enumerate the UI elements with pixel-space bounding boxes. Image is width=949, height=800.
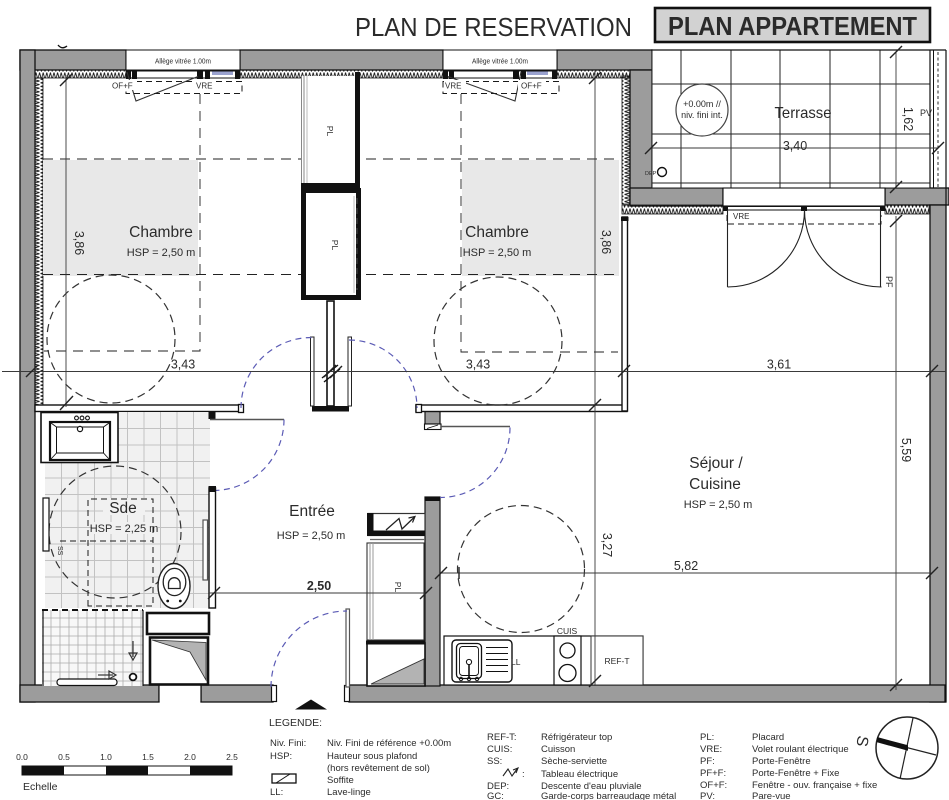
svg-text:DEP: DEP — [645, 171, 657, 177]
svg-text:Chambre: Chambre — [129, 224, 193, 241]
svg-text:LEGENDE:: LEGENDE: — [269, 717, 322, 729]
svg-text:Echelle: Echelle — [23, 781, 58, 793]
svg-text:1.0: 1.0 — [100, 752, 112, 762]
svg-text:1.5: 1.5 — [142, 752, 154, 762]
svg-text:3,43: 3,43 — [466, 358, 490, 372]
svg-text:PLAN DE RESERVATION: PLAN DE RESERVATION — [355, 12, 632, 42]
svg-text:HSP = 2,50 m: HSP = 2,50 m — [684, 499, 753, 511]
svg-text:Niv. Fini de référence +0.00m: Niv. Fini de référence +0.00m — [327, 738, 451, 749]
svg-text:5,59: 5,59 — [899, 438, 913, 462]
svg-text:3,86: 3,86 — [72, 231, 86, 255]
svg-text:Porte-Fenêtre: Porte-Fenêtre — [752, 756, 811, 767]
svg-text:OF+F: OF+F — [112, 82, 133, 91]
svg-text:SS: SS — [56, 546, 63, 556]
svg-text:Garde-corps barreaudage métal: Garde-corps barreaudage métal — [541, 791, 676, 800]
svg-text:3,27: 3,27 — [600, 533, 614, 557]
svg-text:SS:: SS: — [487, 756, 502, 767]
svg-text:Soffite: Soffite — [327, 775, 354, 786]
svg-text:PF: PF — [884, 276, 894, 288]
svg-text:Cuisson: Cuisson — [541, 744, 575, 755]
svg-text:HSP:: HSP: — [270, 751, 292, 762]
svg-text:HSP = 2,50 m: HSP = 2,50 m — [127, 247, 196, 259]
svg-text:Niv. Fini:: Niv. Fini: — [270, 738, 306, 749]
svg-text:Fenêtre - ouv. française + fix: Fenêtre - ouv. française + fixe — [752, 780, 877, 791]
svg-text:HSP = 2,25 m: HSP = 2,25 m — [90, 523, 159, 535]
svg-text:5,82: 5,82 — [674, 559, 698, 573]
svg-text:REF-T:: REF-T: — [487, 732, 517, 743]
svg-text:Séjour /: Séjour / — [689, 455, 743, 472]
svg-text:HSP = 2,50 m: HSP = 2,50 m — [463, 247, 532, 259]
svg-text:0.5: 0.5 — [58, 752, 70, 762]
svg-text:VRE:: VRE: — [700, 744, 722, 755]
svg-text:2.5: 2.5 — [226, 752, 238, 762]
svg-text:PL: PL — [330, 240, 340, 251]
svg-text:VRE: VRE — [196, 82, 212, 91]
svg-text:2.0: 2.0 — [184, 752, 196, 762]
svg-text:Allège vitrée 1.00m: Allège vitrée 1.00m — [472, 57, 528, 66]
svg-text:1,62: 1,62 — [901, 107, 915, 131]
svg-text:2,50: 2,50 — [307, 579, 331, 593]
svg-text:CUIS:: CUIS: — [487, 744, 512, 755]
svg-text:Lave-linge: Lave-linge — [327, 787, 371, 798]
svg-text:Chambre: Chambre — [465, 224, 529, 241]
svg-text:PF:: PF: — [700, 756, 715, 767]
svg-text:Sde: Sde — [109, 500, 137, 517]
svg-text:Entrée: Entrée — [289, 503, 335, 520]
svg-text:Porte-Fenêtre + Fixe: Porte-Fenêtre + Fixe — [752, 768, 839, 779]
svg-text::: : — [522, 769, 525, 780]
svg-text:3,43: 3,43 — [171, 358, 195, 372]
svg-text:3,61: 3,61 — [767, 358, 791, 372]
svg-text:LL: LL — [511, 657, 521, 667]
svg-text:CUIS: CUIS — [557, 626, 578, 636]
svg-text:3,40: 3,40 — [783, 139, 807, 153]
svg-text:LL:: LL: — [270, 787, 283, 798]
svg-text:PL:: PL: — [700, 732, 714, 743]
svg-text:niv. fini int.: niv. fini int. — [681, 110, 723, 120]
svg-text:3,86: 3,86 — [599, 230, 613, 254]
svg-text:Pare-vue: Pare-vue — [752, 791, 791, 800]
svg-text:PF+F:: PF+F: — [700, 768, 726, 779]
svg-text:Cuisine: Cuisine — [689, 476, 741, 493]
svg-text:Volet roulant électrique: Volet roulant électrique — [752, 744, 849, 755]
svg-text:PV: PV — [920, 108, 932, 118]
svg-text:OF+F:: OF+F: — [700, 780, 727, 791]
svg-text:HSP = 2,50 m: HSP = 2,50 m — [277, 530, 346, 542]
svg-text:REF-T: REF-T — [604, 656, 629, 666]
svg-text:Tableau électrique: Tableau électrique — [541, 769, 618, 780]
svg-text:VRE: VRE — [733, 212, 749, 221]
svg-text:Placard: Placard — [752, 732, 784, 743]
svg-text:VRE: VRE — [445, 82, 461, 91]
svg-text:PL: PL — [393, 582, 403, 593]
svg-text:(hors revêtement de sol): (hors revêtement de sol) — [327, 763, 430, 774]
svg-text:0.0: 0.0 — [16, 752, 28, 762]
svg-text:OF+F: OF+F — [521, 82, 542, 91]
svg-text:PL: PL — [325, 126, 335, 137]
svg-text:Allège vitrée 1.00m: Allège vitrée 1.00m — [155, 57, 211, 66]
svg-text:Sèche-serviette: Sèche-serviette — [541, 756, 607, 767]
svg-text:Terrasse: Terrasse — [775, 105, 832, 122]
svg-text:Réfrigérateur top: Réfrigérateur top — [541, 732, 612, 743]
svg-text:PLAN APPARTEMENT: PLAN APPARTEMENT — [668, 11, 917, 41]
svg-text:GC:: GC: — [487, 791, 504, 800]
svg-text:PV:: PV: — [700, 791, 715, 800]
svg-text:+0.00m //: +0.00m // — [683, 99, 721, 109]
svg-text:Hauteur sous plafond: Hauteur sous plafond — [327, 751, 417, 762]
